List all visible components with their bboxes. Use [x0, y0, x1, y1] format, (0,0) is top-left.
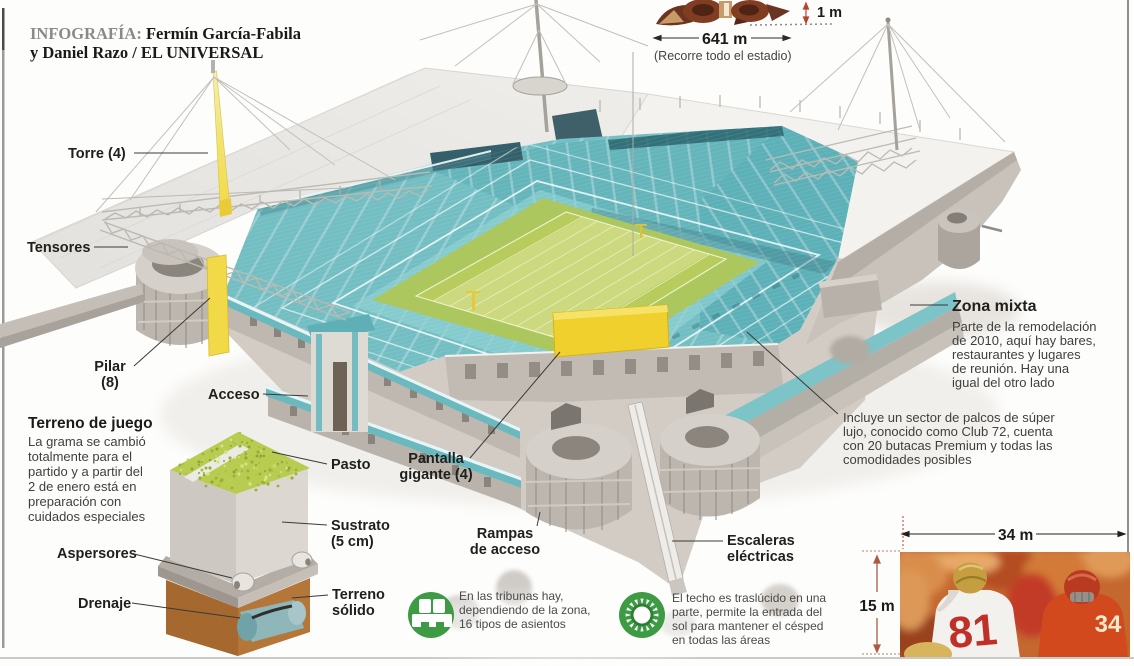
svg-text:34 m: 34 m [998, 527, 1033, 544]
svg-text:igual del otro lado: igual del otro lado [952, 375, 1055, 390]
svg-text:y Daniel Razo / EL UNIVERSAL: y Daniel Razo / EL UNIVERSAL [30, 43, 263, 62]
svg-text:sol para mantener el césped: sol para mantener el césped [672, 619, 823, 633]
svg-text:641 m: 641 m [702, 31, 747, 48]
svg-text:preparación con: preparación con [28, 494, 121, 509]
svg-text:Pasto: Pasto [331, 457, 371, 473]
svg-text:(Recorre todo el estadio): (Recorre todo el estadio) [654, 49, 792, 63]
svg-text:de acceso: de acceso [470, 542, 540, 558]
svg-text:de reunión. Hay una: de reunión. Hay una [952, 361, 1070, 376]
svg-text:16 tipos de asientos: 16 tipos de asientos [459, 617, 566, 631]
svg-text:de 2010, aquí hay bares,: de 2010, aquí hay bares, [952, 333, 1096, 348]
svg-text:INFOGRAFÍA: Fermín García-Fabi: INFOGRAFÍA: Fermín García-Fabila [30, 24, 301, 43]
svg-text:En las tribunas hay,: En las tribunas hay, [459, 589, 564, 603]
svg-text:Aspersores: Aspersores [57, 546, 137, 562]
svg-text:81: 81 [946, 605, 999, 658]
svg-text:eléctricas: eléctricas [727, 549, 794, 565]
svg-text:comodidades posibles: comodidades posibles [843, 452, 972, 467]
svg-text:1 m: 1 m [817, 5, 842, 21]
svg-text:(8): (8) [101, 375, 119, 391]
svg-text:Parte de la remodelación: Parte de la remodelación [952, 319, 1097, 334]
svg-text:34: 34 [1095, 611, 1122, 638]
svg-text:Pantalla: Pantalla [408, 451, 465, 467]
svg-text:Pilar: Pilar [94, 359, 126, 375]
svg-text:en todas las áreas: en todas las áreas [672, 633, 770, 647]
svg-text:Torre (4): Torre (4) [68, 146, 126, 162]
svg-text:Zona mixta: Zona mixta [952, 298, 1037, 315]
svg-text:parte, permite la entrada del: parte, permite la entrada del [672, 605, 822, 619]
svg-text:15 m: 15 m [859, 598, 894, 615]
svg-text:cuidados especiales: cuidados especiales [28, 509, 146, 524]
svg-text:Acceso: Acceso [208, 387, 260, 403]
svg-text:Terreno: Terreno [332, 587, 385, 603]
svg-text:Drenaje: Drenaje [78, 596, 131, 612]
svg-text:El techo es traslúcido en una: El techo es traslúcido en una [672, 591, 826, 605]
svg-text:Terreno de juego: Terreno de juego [28, 415, 153, 432]
svg-text:dependiendo de la zona,: dependiendo de la zona, [459, 603, 590, 617]
svg-text:sólido: sólido [332, 603, 375, 619]
svg-text:lujo, conocido como Club 72, c: lujo, conocido como Club 72, cuenta [843, 424, 1053, 439]
svg-text:Sustrato: Sustrato [331, 518, 390, 534]
svg-text:gigante (4): gigante (4) [399, 467, 472, 483]
svg-text:totalmente para el: totalmente para el [28, 449, 132, 464]
svg-text:Escaleras: Escaleras [727, 533, 795, 549]
svg-text:La grama se cambió: La grama se cambió [28, 434, 146, 449]
svg-text:Rampas: Rampas [477, 526, 533, 542]
svg-text:restaurantes y lugares: restaurantes y lugares [952, 347, 1081, 362]
svg-text:Incluye un sector de palcos de: Incluye un sector de palcos de súper [843, 410, 1055, 425]
svg-text:2 de enero está en: 2 de enero está en [28, 479, 136, 494]
svg-text:con 20 butacas Premium y todas: con 20 butacas Premium y todas las [843, 438, 1053, 453]
svg-text:partido y a partir del: partido y a partir del [28, 464, 143, 479]
svg-text:Tensores: Tensores [27, 240, 90, 256]
svg-text:(5 cm): (5 cm) [331, 534, 374, 550]
